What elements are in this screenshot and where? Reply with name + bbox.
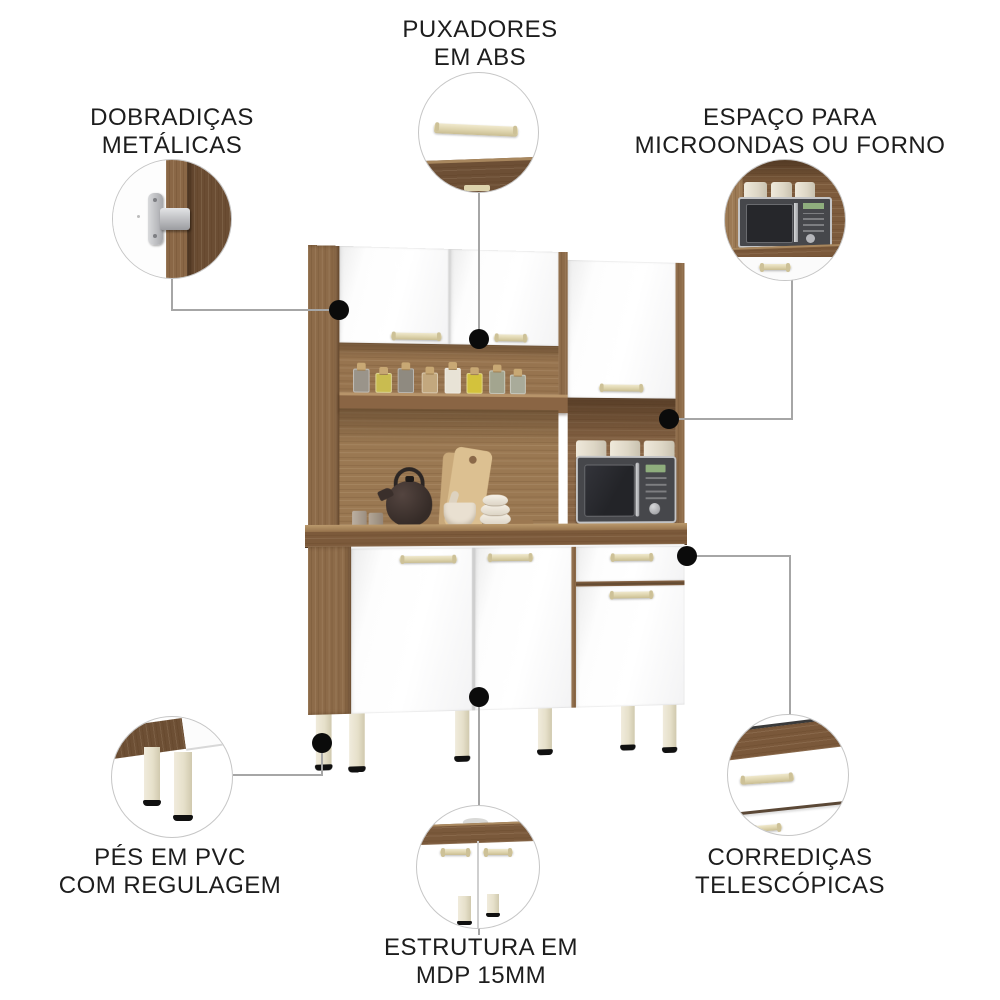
callout-circle-microwave [724, 159, 846, 281]
connector-slides [687, 555, 791, 557]
microwave-knob [649, 503, 660, 515]
microwave [576, 456, 676, 524]
leg-foot [315, 764, 333, 771]
callout-dot-hinges [329, 300, 349, 320]
spice-jar [422, 372, 438, 393]
base-door-right [576, 585, 684, 707]
leg-foot [620, 744, 636, 750]
drawer-handle-detail [740, 773, 794, 785]
spice-jar [375, 373, 391, 393]
leg [663, 705, 677, 748]
callout-circle-handles [418, 72, 539, 193]
label-line: CORREDIÇAS [707, 844, 872, 871]
leg [538, 708, 552, 749]
label-line: EM ABS [434, 44, 526, 71]
callout-dot-slides [677, 546, 697, 566]
leg-foot [537, 749, 553, 755]
callout-circle-feet [111, 716, 233, 838]
product-infographic: PUXADORES EM ABS DOBRADIÇAS METÁLICAS ES… [0, 0, 1000, 1000]
pvc-leg-detail [174, 752, 192, 816]
upper-door-middle-handle [494, 334, 528, 341]
label-line: MDP 15MM [416, 962, 546, 989]
leg-foot [662, 747, 677, 753]
spice-jar [353, 369, 370, 393]
leg [349, 713, 365, 766]
countertop [305, 523, 687, 547]
spice-jar [398, 368, 414, 393]
leg-foot [454, 756, 470, 762]
connector-hinges [171, 309, 339, 311]
spice-jar [489, 370, 505, 394]
leg-detail [487, 894, 499, 914]
microwave-detail [738, 197, 832, 247]
leg-foot [348, 766, 366, 773]
upper-door-left [339, 246, 448, 344]
base-door-left [351, 548, 472, 714]
label-handles: PUXADORES EM ABS [402, 16, 557, 72]
upper-door-left-handle [391, 332, 442, 340]
label-structure: ESTRUTURA EM MDP 15MM [384, 934, 578, 990]
label-line: ESTRUTURA EM [384, 934, 578, 961]
label-line: ESPAÇO PARA [703, 104, 877, 131]
connector-feet [321, 750, 323, 776]
connector-microwave [669, 418, 793, 420]
drawer-front [576, 546, 684, 582]
label-line: PÉS EM PVC [94, 844, 246, 871]
connector-feet [233, 774, 323, 776]
base-door-right-handle [609, 591, 654, 598]
label-hinges: DOBRADIÇAS METÁLICAS [90, 104, 254, 160]
label-line: TELESCÓPICAS [695, 872, 885, 899]
kitchen-cabinet [308, 245, 684, 715]
callout-dot-handles [469, 329, 489, 349]
microwave-window [585, 464, 635, 517]
right-edge-panel [675, 263, 684, 523]
connector-hinges [171, 277, 173, 311]
label-microwave: ESPAÇO PARA MICROONDAS OU FORNO [635, 104, 946, 160]
upper-door-right-handle [599, 384, 644, 391]
label-feet: PÉS EM PVC COM REGULAGEM [59, 844, 282, 900]
spice-jar [466, 373, 482, 394]
microwave-door-handle [635, 463, 639, 516]
callout-circle-hinges [112, 159, 232, 279]
kettle [384, 467, 434, 529]
kettle-body [386, 481, 432, 527]
pvc-leg-detail [144, 747, 160, 800]
bowl-stack [483, 495, 508, 507]
label-slides: CORREDIÇAS TELESCÓPICAS [695, 844, 885, 900]
connector-microwave [791, 278, 793, 420]
label-line: DOBRADIÇAS [90, 104, 254, 131]
connector-handles [478, 191, 480, 339]
microwave-control-panel [643, 462, 671, 518]
callout-circle-structure [416, 805, 540, 929]
callout-dot-structure [469, 687, 489, 707]
base-door-center [475, 547, 571, 711]
callout-dot-feet [312, 733, 332, 753]
hinge-arm [160, 208, 190, 229]
kettle-lid [405, 476, 414, 482]
callout-dot-microwave [659, 409, 679, 429]
label-line: METÁLICAS [102, 132, 243, 159]
leg-detail [458, 896, 470, 920]
spice-jar [445, 368, 461, 394]
base-door-left-handle [400, 556, 457, 563]
spice-jar [510, 375, 526, 395]
microwave-buttons [646, 476, 667, 499]
upper-door-right [568, 260, 676, 399]
label-line: COM REGULAGEM [59, 872, 282, 899]
leg [455, 711, 469, 757]
upper-door-middle [450, 249, 558, 346]
base-left-frame [308, 547, 351, 715]
callout-circle-slides [727, 714, 849, 836]
microwave-display [646, 464, 665, 472]
label-line: PUXADORES [402, 16, 557, 43]
base-door-center-handle [487, 554, 533, 561]
abs-handle-detail [434, 124, 519, 138]
label-line: MICROONDAS OU FORNO [635, 132, 946, 159]
top-divider-panel [558, 252, 567, 410]
connector-slides [789, 555, 791, 715]
leg [621, 706, 635, 745]
drawer-handle [610, 554, 654, 561]
